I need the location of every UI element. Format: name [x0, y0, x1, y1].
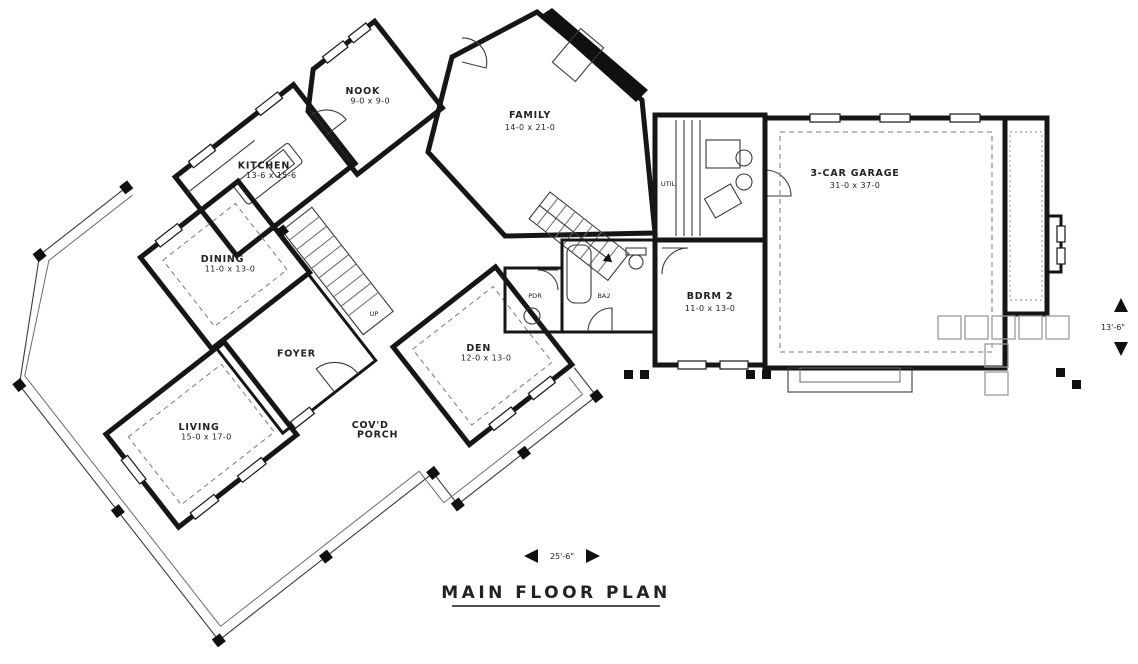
label-dining-dims: 11-0 x 13-0 [205, 264, 256, 273]
label-family-dims: 14-0 x 21-0 [505, 123, 556, 132]
label-garage: 3-CAR GARAGE [810, 168, 899, 179]
label-bdrm2: BDRM 2 [687, 291, 734, 302]
label-kitchen: KITCHEN [238, 161, 290, 172]
stair-up: UP [276, 204, 393, 337]
label-living: LIVING [179, 422, 220, 433]
label-ba2: BA2 [597, 292, 610, 300]
label-den: DEN [466, 343, 491, 354]
bottom-dimension-text: 25'-6" [550, 552, 574, 561]
bottom-dimension: 25'-6" [524, 549, 600, 563]
room-bdrm2: BDRM 2 11-0 x 13-0 [655, 240, 765, 369]
label-nook-dims: 9-0 x 9-0 [350, 96, 390, 105]
room-family: FAMILY 14-0 x 21-0 [428, 8, 655, 236]
label-dining: DINING [201, 254, 244, 265]
right-dimension: 13'-6" [1101, 298, 1128, 356]
label-util: UTIL [661, 180, 676, 188]
dim-arrow-right-icon [586, 549, 600, 563]
floor-plan-drawing: UP KITCHEN 13-6 x 15-6 NOOK 9-0 x 9-0 DI… [0, 0, 1138, 664]
pier-footings [624, 368, 1081, 389]
dim-arrow-up-icon [1114, 298, 1128, 312]
label-covd-porch-2: PORCH [357, 430, 398, 441]
floor-plan-page: UP KITCHEN 13-6 x 15-6 NOOK 9-0 x 9-0 DI… [0, 0, 1138, 664]
label-bdrm2-dims: 11-0 x 13-0 [685, 304, 736, 313]
label-kitchen-dims: 13-6 x 15-6 [246, 171, 297, 180]
dim-arrow-left-icon [524, 549, 538, 563]
dim-arrow-down-icon [1114, 342, 1128, 356]
room-garage: 3-CAR GARAGE 31-0 x 37-0 [765, 114, 1065, 392]
label-living-dims: 15-0 x 17-0 [181, 432, 232, 441]
right-dimension-text: 13'-6" [1101, 323, 1125, 332]
fireplace [540, 8, 648, 102]
label-den-dims: 12-0 x 13-0 [461, 353, 512, 362]
garage-stoop [788, 368, 912, 392]
label-garage-dims: 31-0 x 37-0 [830, 181, 881, 190]
plan-title: MAIN FLOOR PLAN [441, 583, 670, 603]
utility-block: UTIL [655, 115, 791, 240]
room-pdr: PDR [505, 268, 562, 332]
label-nook: NOOK [346, 86, 381, 97]
plan-title-block: MAIN FLOOR PLAN [441, 583, 670, 606]
garage-door-arc [765, 170, 791, 196]
label-foyer: FOYER [277, 348, 316, 359]
label-pdr: PDR [528, 292, 542, 300]
label-family: FAMILY [509, 110, 551, 121]
stair-up-label: UP [370, 310, 379, 318]
